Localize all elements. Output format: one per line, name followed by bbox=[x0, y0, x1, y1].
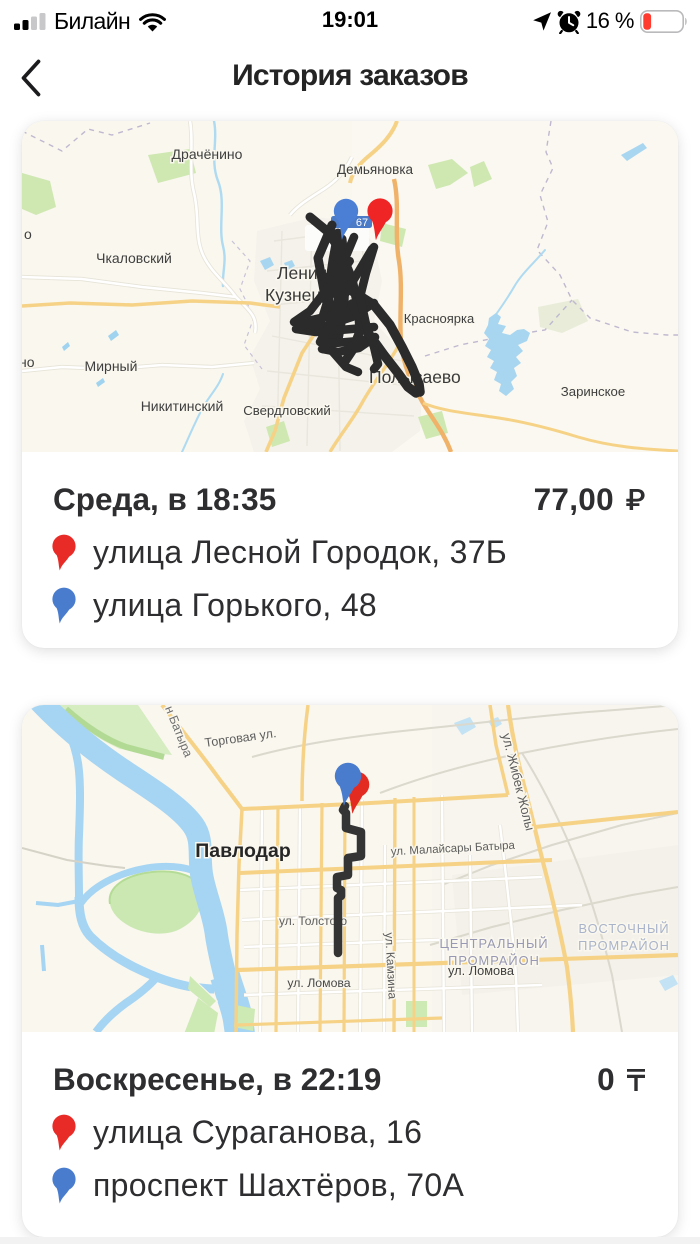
svg-text:Драчёнино: Драчёнино bbox=[172, 146, 243, 162]
svg-text:но: но bbox=[22, 354, 35, 370]
svg-text:ПРОМРАЙОН: ПРОМРАЙОН bbox=[448, 953, 540, 968]
svg-text:ЦЕНТРАЛЬНЫЙ: ЦЕНТРАЛЬНЫЙ bbox=[439, 936, 548, 951]
svg-text:Красноярка: Красноярка bbox=[404, 311, 475, 326]
svg-text:Свердловский: Свердловский bbox=[243, 403, 331, 418]
svg-text:Заринское: Заринское bbox=[561, 384, 625, 399]
svg-text:ПРОМРАЙОН: ПРОМРАЙОН bbox=[578, 938, 670, 953]
svg-text:ул. Ломова: ул. Ломова bbox=[287, 976, 350, 990]
svg-text:Никитинский: Никитинский bbox=[141, 398, 224, 414]
svg-text:Мирный: Мирный bbox=[85, 358, 138, 374]
svg-text:Чкаловский: Чкаловский bbox=[96, 250, 172, 266]
svg-text:67: 67 bbox=[356, 217, 368, 229]
svg-text:ВОСТОЧНЫЙ: ВОСТОЧНЫЙ bbox=[578, 921, 669, 936]
svg-text:о: о bbox=[24, 226, 32, 242]
svg-text:Павлодар: Павлодар bbox=[195, 840, 291, 862]
svg-text:Демьяновка: Демьяновка bbox=[337, 162, 414, 177]
